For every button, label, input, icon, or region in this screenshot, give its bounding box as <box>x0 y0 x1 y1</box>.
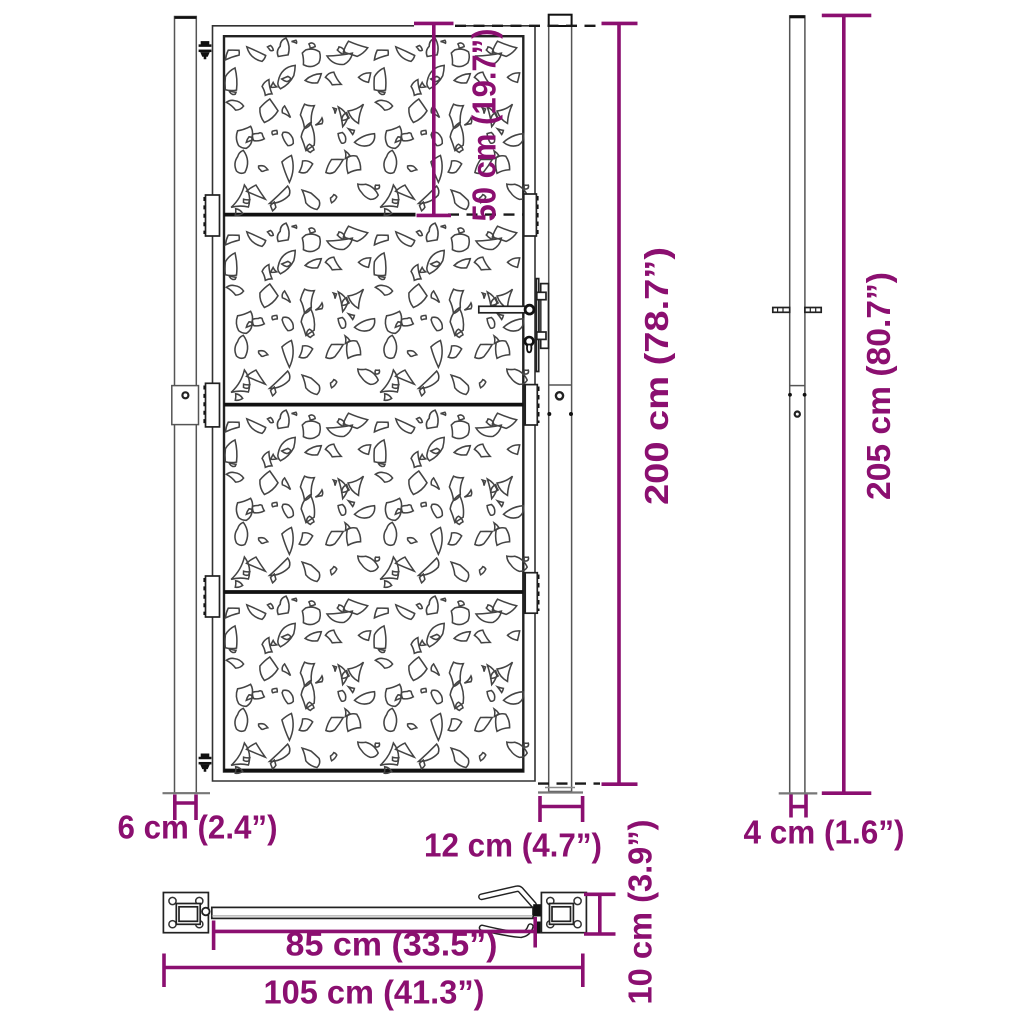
svg-text:6 cm (2.4”): 6 cm (2.4”) <box>118 809 278 846</box>
svg-text:85 cm (33.5”): 85 cm (33.5”) <box>286 926 498 963</box>
svg-text:12 cm (4.7”): 12 cm (4.7”) <box>424 827 602 864</box>
svg-text:200 cm (78.7”): 200 cm (78.7”) <box>638 247 675 505</box>
svg-text:205 cm (80.7”): 205 cm (80.7”) <box>860 272 897 500</box>
svg-text:10 cm (3.9”): 10 cm (3.9”) <box>622 820 659 1005</box>
svg-text:4 cm (1.6”): 4 cm (1.6”) <box>744 814 905 851</box>
svg-text:105 cm (41.3”): 105 cm (41.3”) <box>264 974 485 1011</box>
svg-text:50 cm (19.7”): 50 cm (19.7”) <box>466 29 503 222</box>
